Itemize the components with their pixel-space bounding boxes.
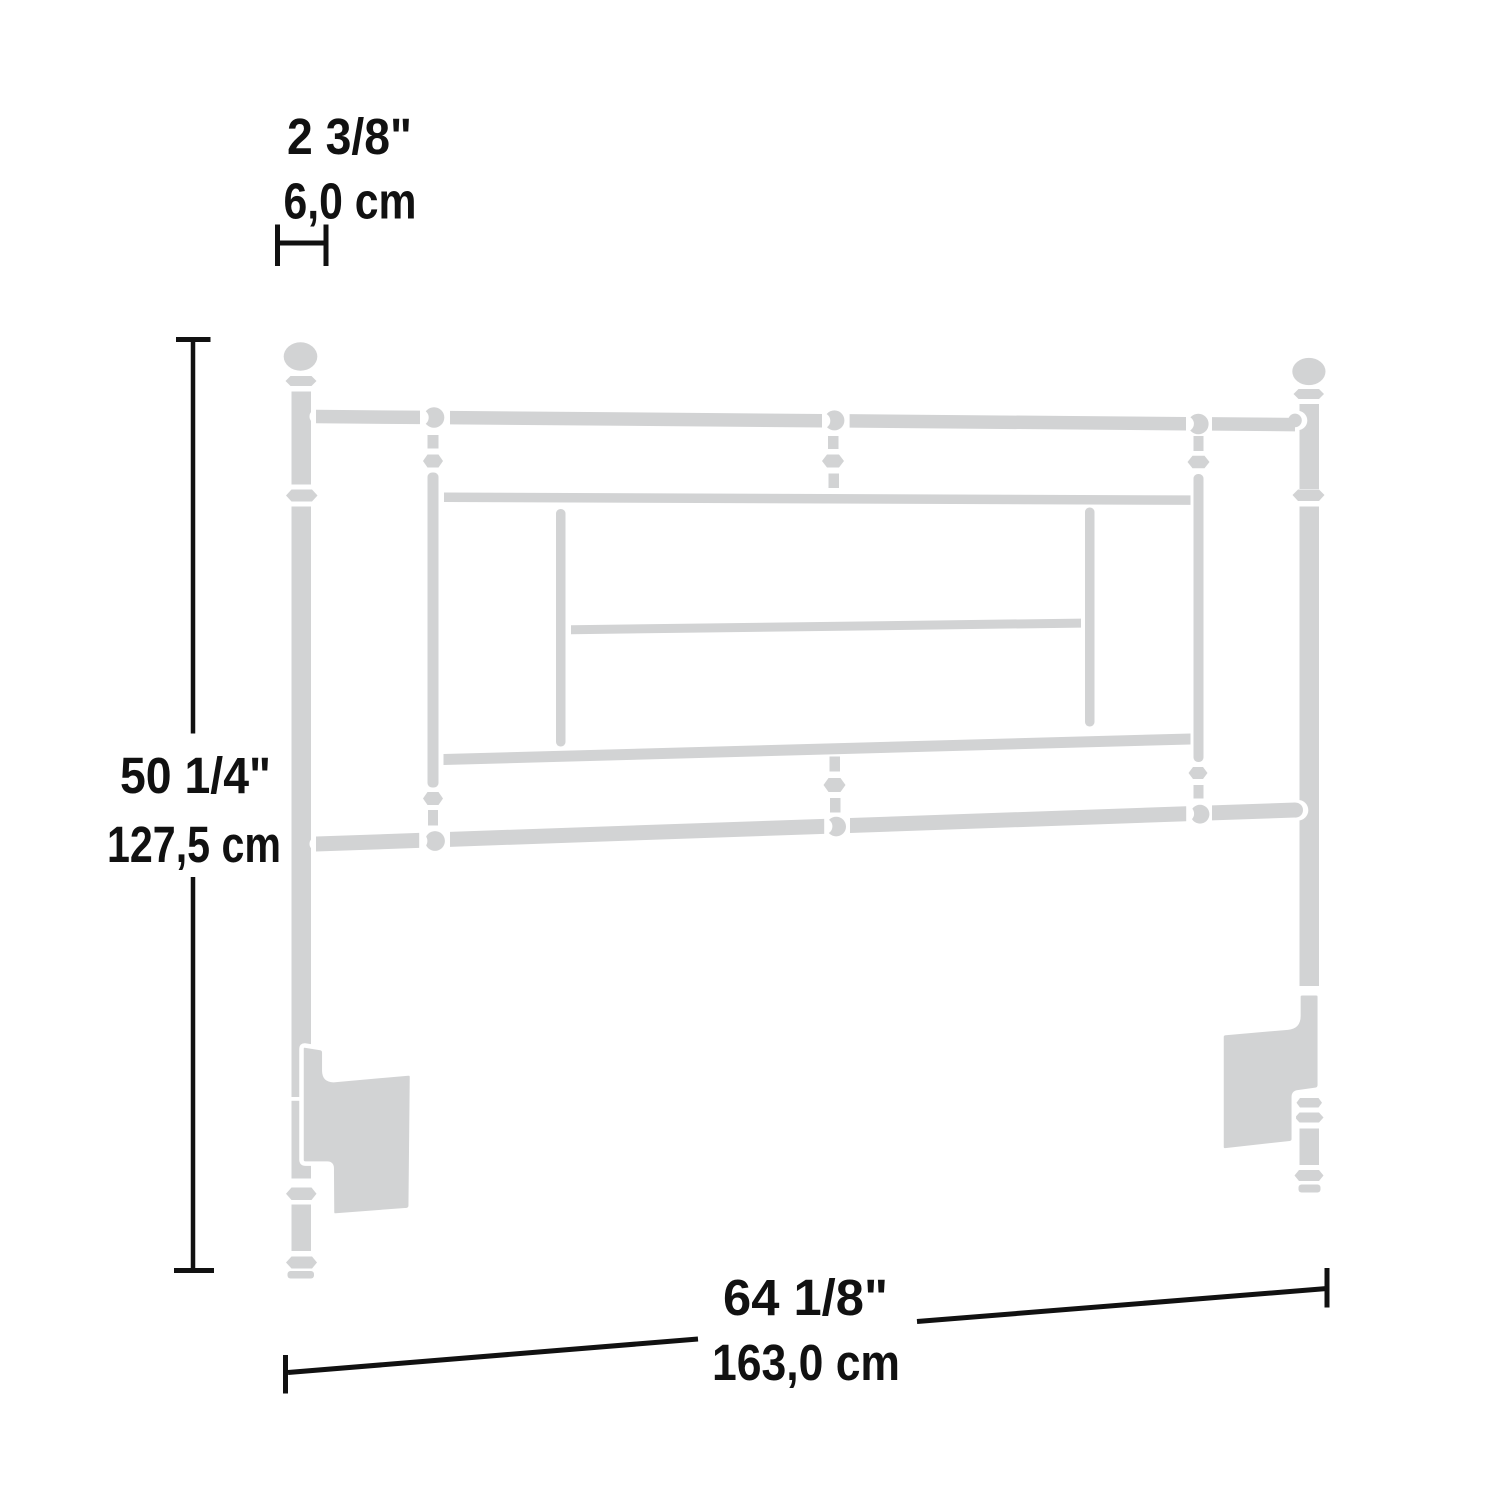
svg-text:64 1/8": 64 1/8" — [723, 1269, 888, 1326]
svg-text:127,5 cm: 127,5 cm — [107, 816, 281, 873]
svg-text:50 1/4": 50 1/4" — [120, 747, 271, 804]
svg-text:6,0 cm: 6,0 cm — [284, 173, 417, 230]
svg-text:163,0 cm: 163,0 cm — [712, 1334, 900, 1391]
svg-text:2 3/8": 2 3/8" — [287, 108, 412, 165]
